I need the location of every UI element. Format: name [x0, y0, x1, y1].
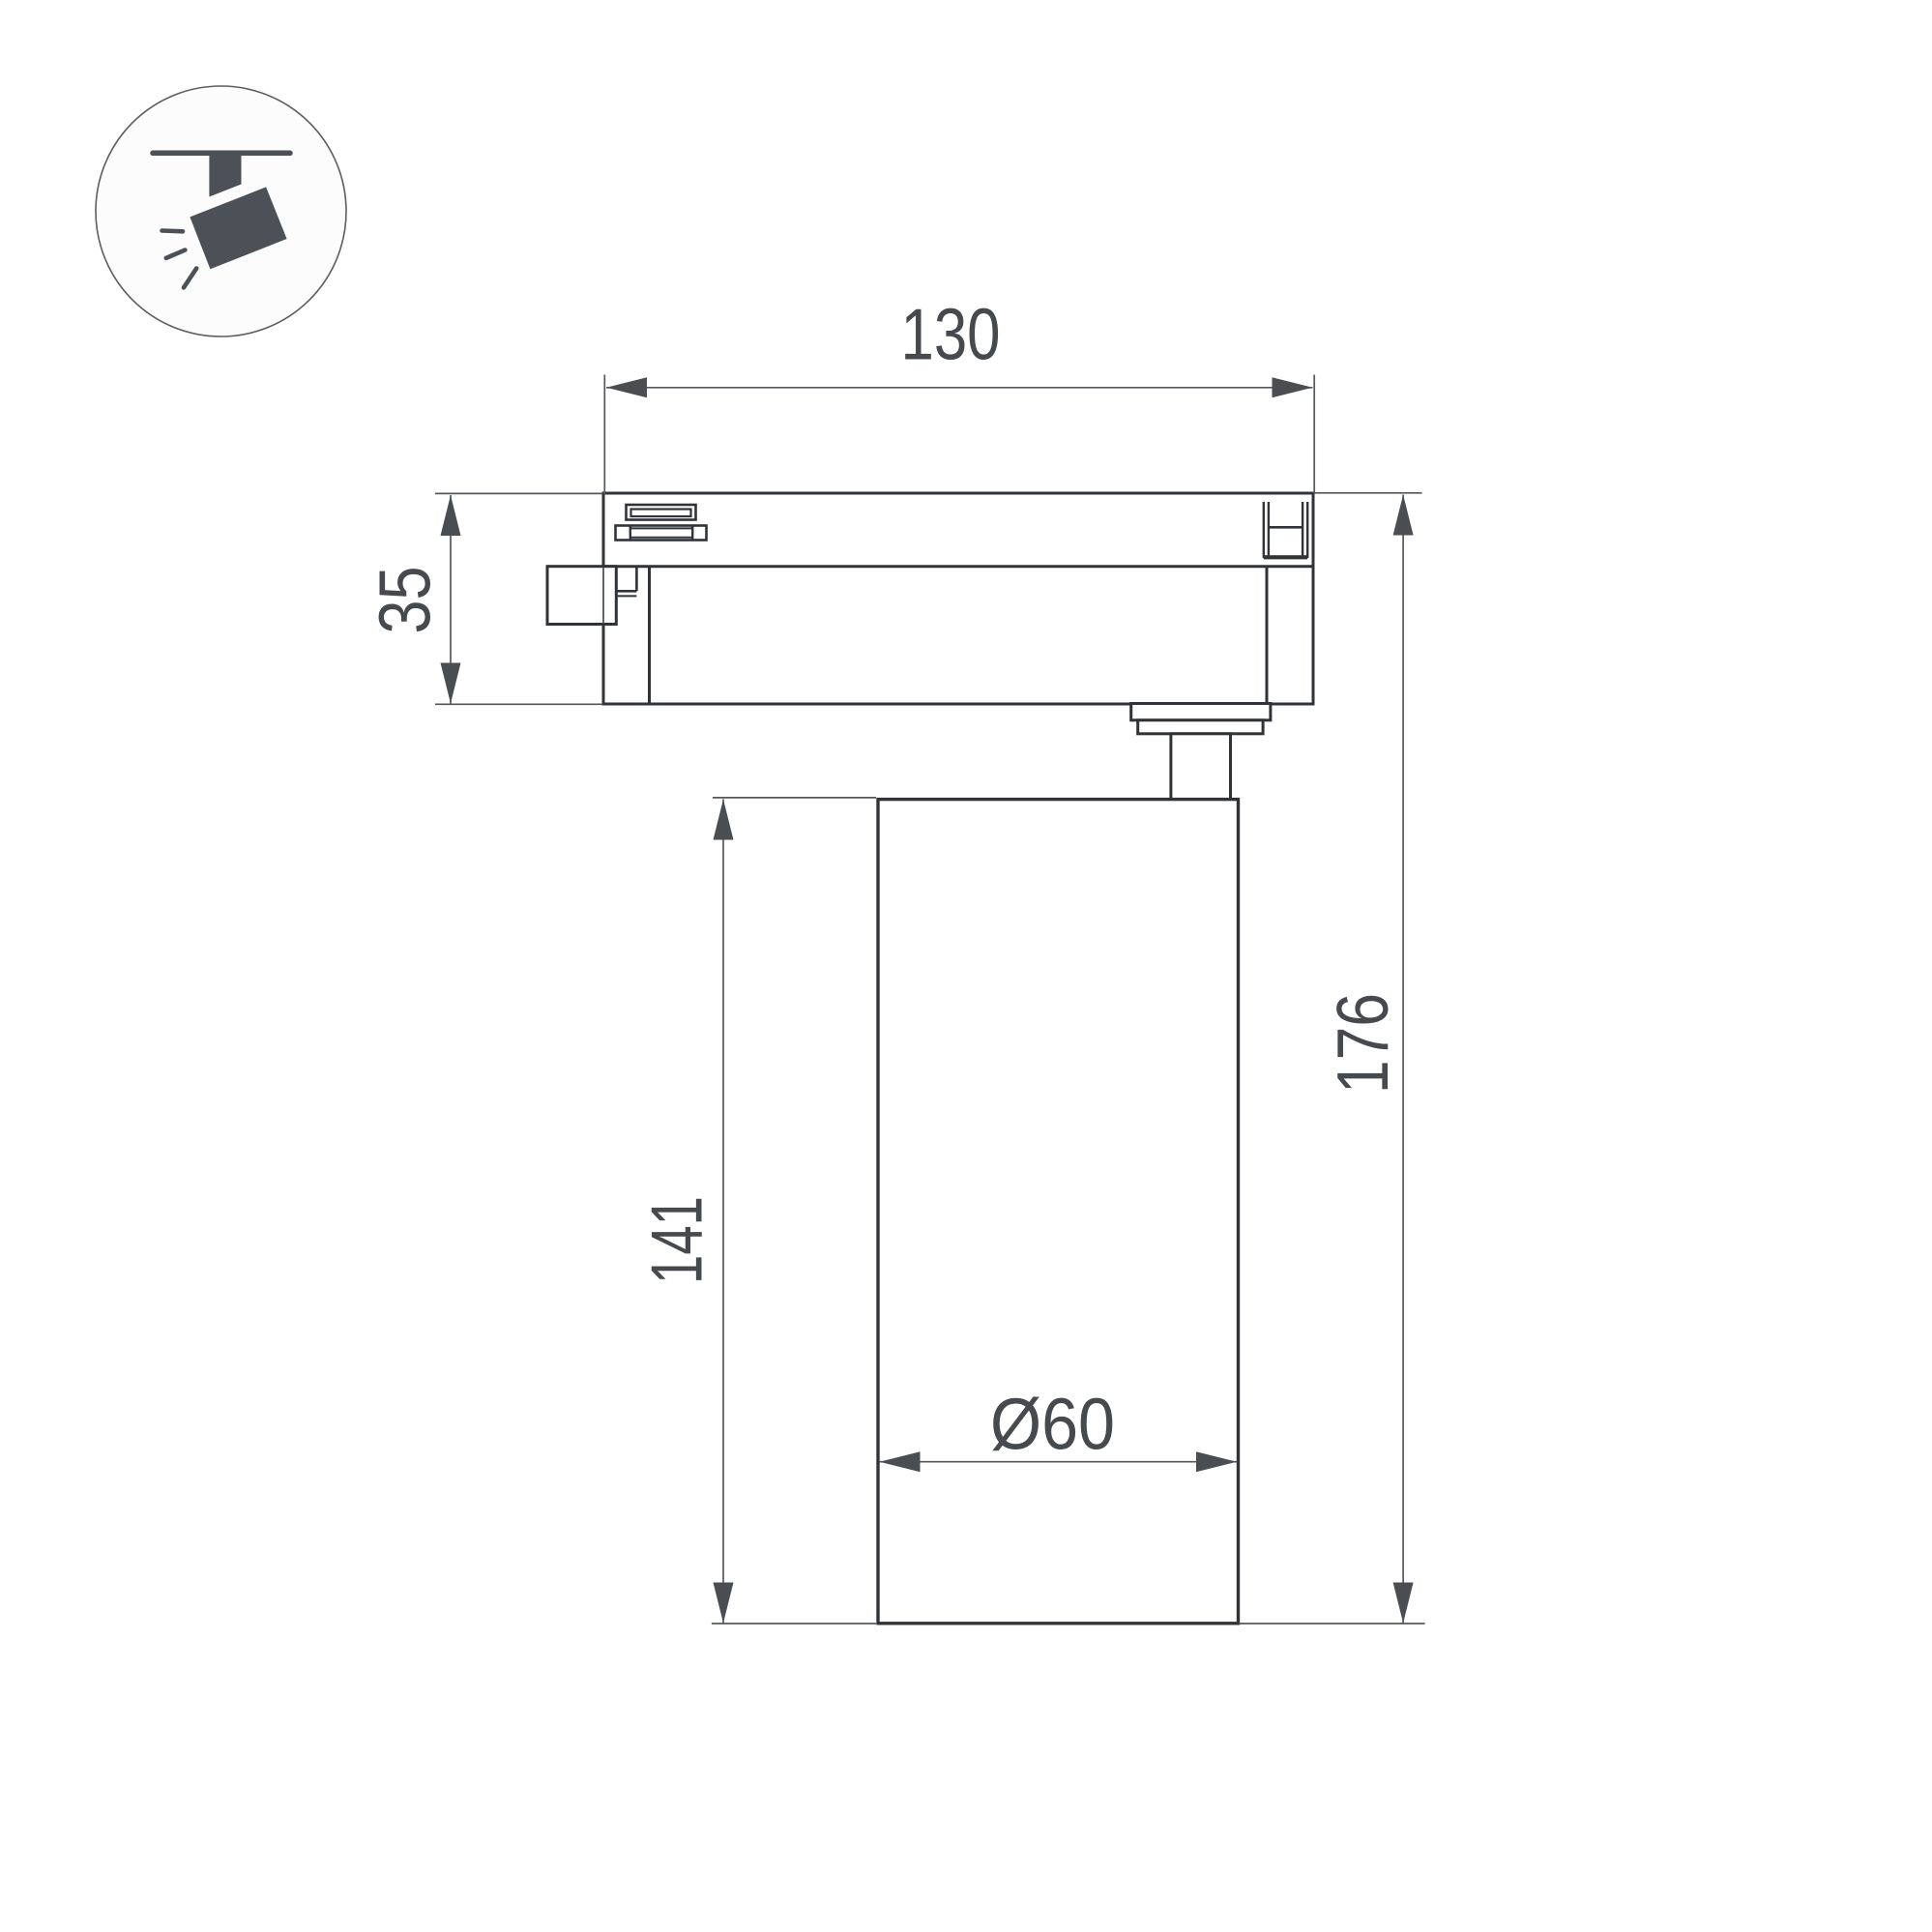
svg-text:176: 176	[1322, 993, 1403, 1094]
svg-text:Ø60: Ø60	[990, 1384, 1115, 1465]
svg-text:130: 130	[901, 294, 1001, 375]
svg-text:141: 141	[636, 1196, 717, 1284]
svg-text:35: 35	[365, 567, 446, 634]
